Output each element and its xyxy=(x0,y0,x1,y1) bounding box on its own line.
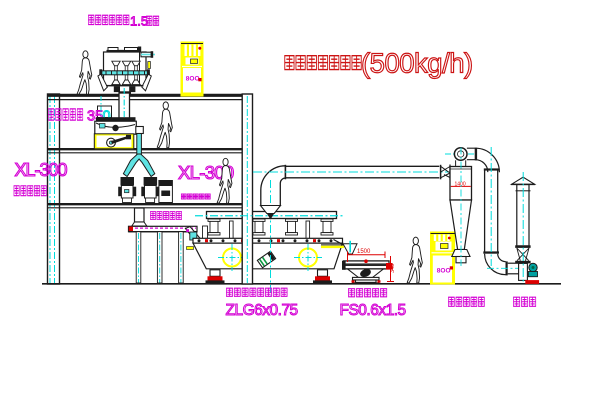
svg-text:XL-300: XL-300 xyxy=(15,160,68,180)
svg-text:340: 340 xyxy=(390,264,396,273)
svg-text:8OO: 8OO xyxy=(437,267,451,274)
svg-text:1500: 1500 xyxy=(357,249,371,255)
svg-text:(500kg/h): (500kg/h) xyxy=(361,48,473,79)
svg-text:1400: 1400 xyxy=(455,182,466,188)
svg-text:FS0.6x1.5: FS0.6x1.5 xyxy=(340,302,406,319)
svg-text:ZLG6x0.75: ZLG6x0.75 xyxy=(226,302,298,319)
svg-text:1.5: 1.5 xyxy=(130,14,148,29)
svg-text:8OO: 8OO xyxy=(186,75,200,82)
